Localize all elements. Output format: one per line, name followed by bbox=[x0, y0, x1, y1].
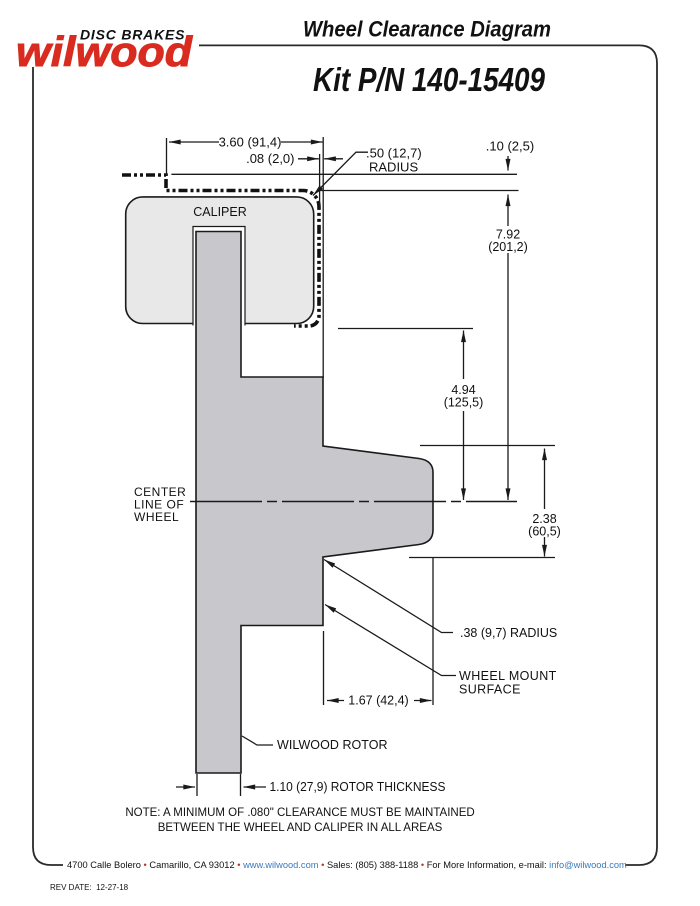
svg-text:WHEEL MOUNT: WHEEL MOUNT bbox=[459, 669, 557, 683]
svg-text:1.67 (42,4): 1.67 (42,4) bbox=[348, 694, 408, 708]
svg-text:.08 (2,0): .08 (2,0) bbox=[246, 151, 294, 166]
svg-text:Kit P/N 140-15409: Kit P/N 140-15409 bbox=[313, 61, 546, 98]
svg-text:CALIPER: CALIPER bbox=[193, 205, 247, 219]
svg-text:3.60 (91,4): 3.60 (91,4) bbox=[219, 135, 282, 150]
svg-text:WILWOOD ROTOR: WILWOOD ROTOR bbox=[277, 738, 388, 752]
svg-text:(60,5): (60,5) bbox=[528, 525, 561, 539]
svg-text:RADIUS: RADIUS bbox=[369, 160, 418, 175]
svg-text:(201,2): (201,2) bbox=[488, 240, 528, 254]
svg-text:WHEEL: WHEEL bbox=[134, 510, 179, 524]
svg-text:REV DATE: 12-27-18: REV DATE: 12-27-18 bbox=[50, 883, 129, 892]
svg-text:wilwood: wilwood bbox=[16, 29, 193, 76]
svg-text:.38 (9,7) RADIUS: .38 (9,7) RADIUS bbox=[460, 626, 557, 640]
svg-text:4700 Calle Bolero • Camarillo,: 4700 Calle Bolero • Camarillo, CA 93012 … bbox=[67, 860, 627, 870]
svg-text:Wheel Clearance Diagram: Wheel Clearance Diagram bbox=[303, 17, 551, 42]
svg-text:(125,5): (125,5) bbox=[444, 396, 484, 410]
svg-text:.10 (2,5): .10 (2,5) bbox=[486, 139, 534, 154]
svg-text:.50 (12,7): .50 (12,7) bbox=[366, 146, 422, 161]
svg-text:NOTE: A MINIMUM OF .080" CLEAR: NOTE: A MINIMUM OF .080" CLEARANCE MUST … bbox=[125, 807, 474, 819]
svg-text:1.10 (27,9) ROTOR THICKNESS: 1.10 (27,9) ROTOR THICKNESS bbox=[270, 779, 446, 794]
svg-text:BETWEEN THE WHEEL AND CALIPER: BETWEEN THE WHEEL AND CALIPER IN ALL ARE… bbox=[158, 822, 443, 834]
svg-text:SURFACE: SURFACE bbox=[459, 683, 521, 697]
